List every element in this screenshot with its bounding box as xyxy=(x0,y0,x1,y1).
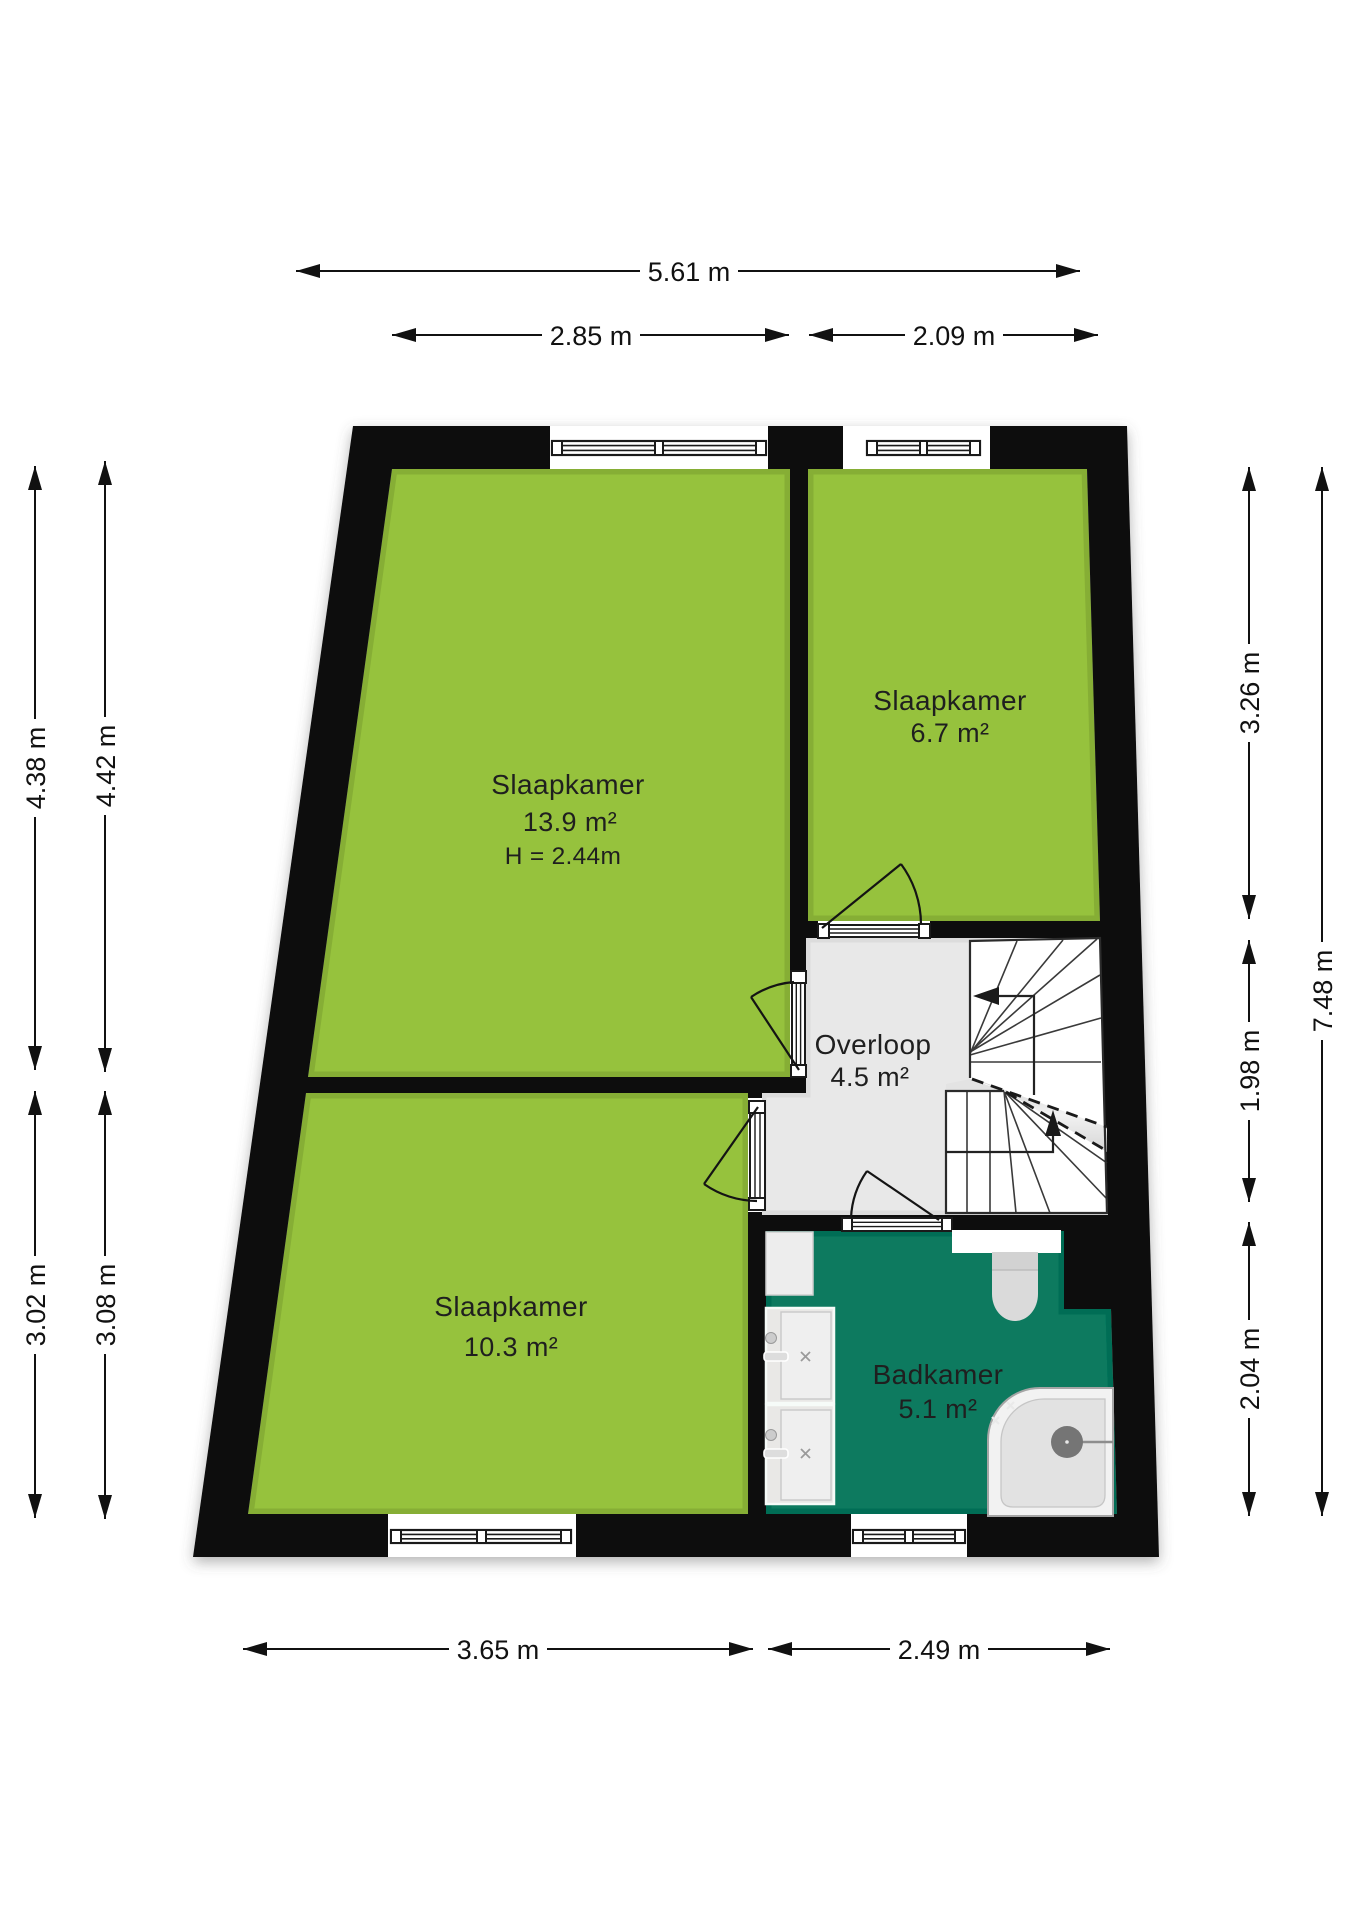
svg-text:5.1 m²: 5.1 m² xyxy=(899,1394,978,1424)
svg-text:10.3 m²: 10.3 m² xyxy=(464,1332,558,1362)
svg-text:Slaapkamer: Slaapkamer xyxy=(434,1291,587,1322)
svg-text:13.9 m²: 13.9 m² xyxy=(523,807,617,837)
svg-text:Slaapkamer: Slaapkamer xyxy=(491,769,644,800)
svg-text:3.26 m: 3.26 m xyxy=(1235,652,1265,735)
svg-text:7.48 m: 7.48 m xyxy=(1308,950,1338,1033)
svg-text:3.65 m: 3.65 m xyxy=(457,1635,540,1665)
svg-text:4.42 m: 4.42 m xyxy=(91,725,121,808)
svg-text:5.61 m: 5.61 m xyxy=(648,257,731,287)
svg-text:2.04 m: 2.04 m xyxy=(1235,1328,1265,1411)
svg-text:4.38 m: 4.38 m xyxy=(21,727,51,810)
svg-text:3.02 m: 3.02 m xyxy=(21,1264,51,1347)
svg-text:2.09 m: 2.09 m xyxy=(913,321,996,351)
svg-text:6.7 m²: 6.7 m² xyxy=(911,718,990,748)
svg-text:Slaapkamer: Slaapkamer xyxy=(873,685,1026,716)
svg-text:Badkamer: Badkamer xyxy=(873,1359,1004,1390)
svg-text:2.49 m: 2.49 m xyxy=(898,1635,981,1665)
svg-text:3.08 m: 3.08 m xyxy=(91,1264,121,1347)
svg-text:2.85 m: 2.85 m xyxy=(550,321,633,351)
svg-text:H = 2.44m: H = 2.44m xyxy=(505,843,621,870)
svg-text:Overloop: Overloop xyxy=(815,1029,932,1060)
svg-text:4.5 m²: 4.5 m² xyxy=(831,1062,910,1092)
svg-text:1.98 m: 1.98 m xyxy=(1235,1030,1265,1113)
